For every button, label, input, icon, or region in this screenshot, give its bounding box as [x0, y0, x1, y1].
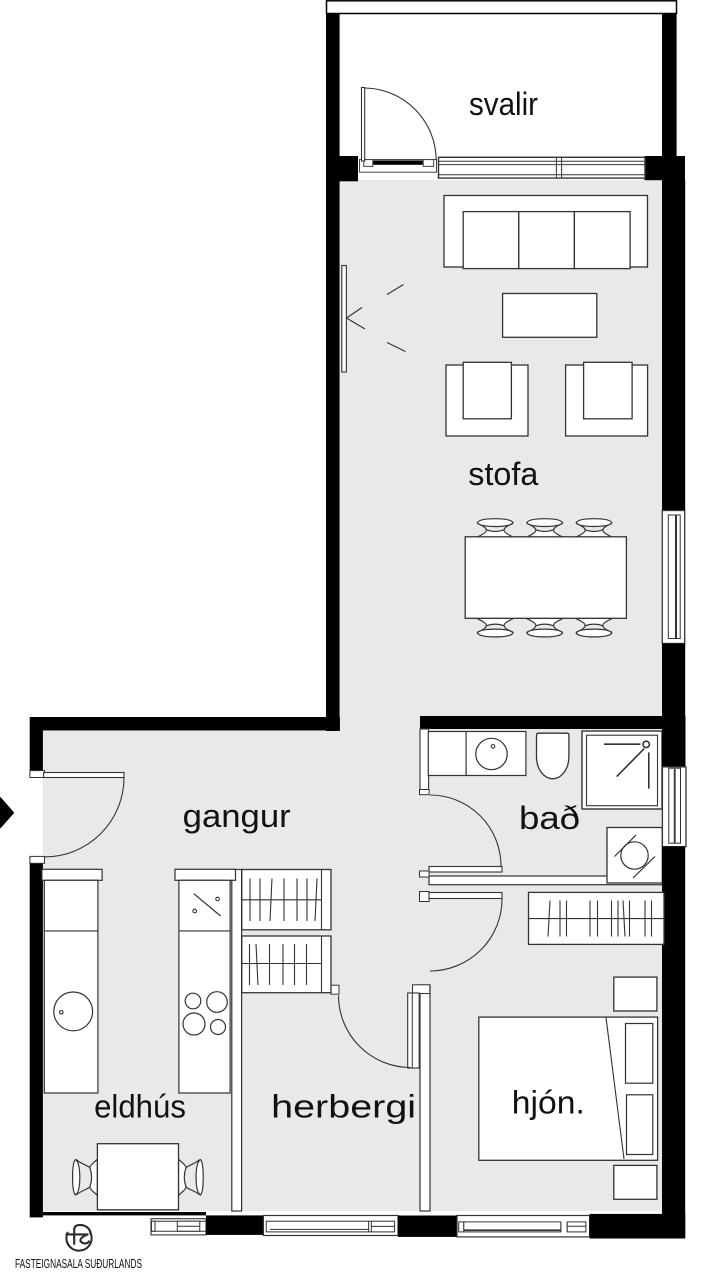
svg-text:hjón.: hjón. [512, 1085, 585, 1121]
svg-text:gangur: gangur [183, 798, 291, 834]
svg-text:eldhús: eldhús [94, 1089, 186, 1125]
svg-text:svalir: svalir [469, 86, 538, 122]
svg-text:FASTEIGNASALA SUÐURLANDS: FASTEIGNASALA SUÐURLANDS [15, 1257, 142, 1271]
svg-text:herbergi: herbergi [271, 1089, 416, 1125]
svg-text:bað: bað [519, 800, 580, 836]
svg-text:stofa: stofa [468, 456, 538, 492]
